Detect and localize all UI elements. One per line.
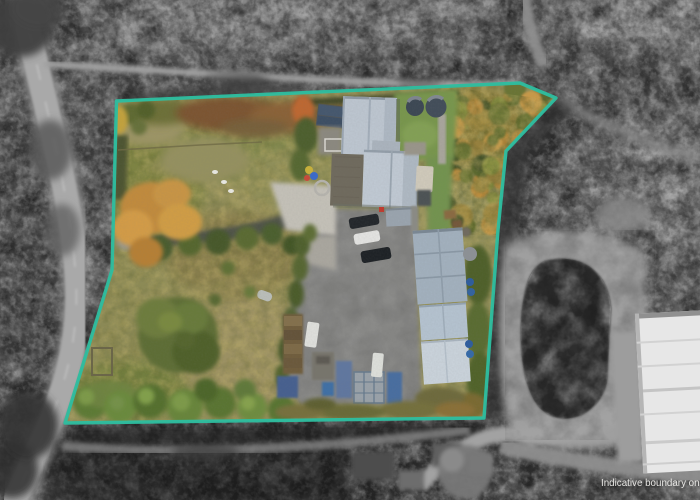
svg-text:Indicative boundary only: Indicative boundary only bbox=[601, 478, 700, 489]
